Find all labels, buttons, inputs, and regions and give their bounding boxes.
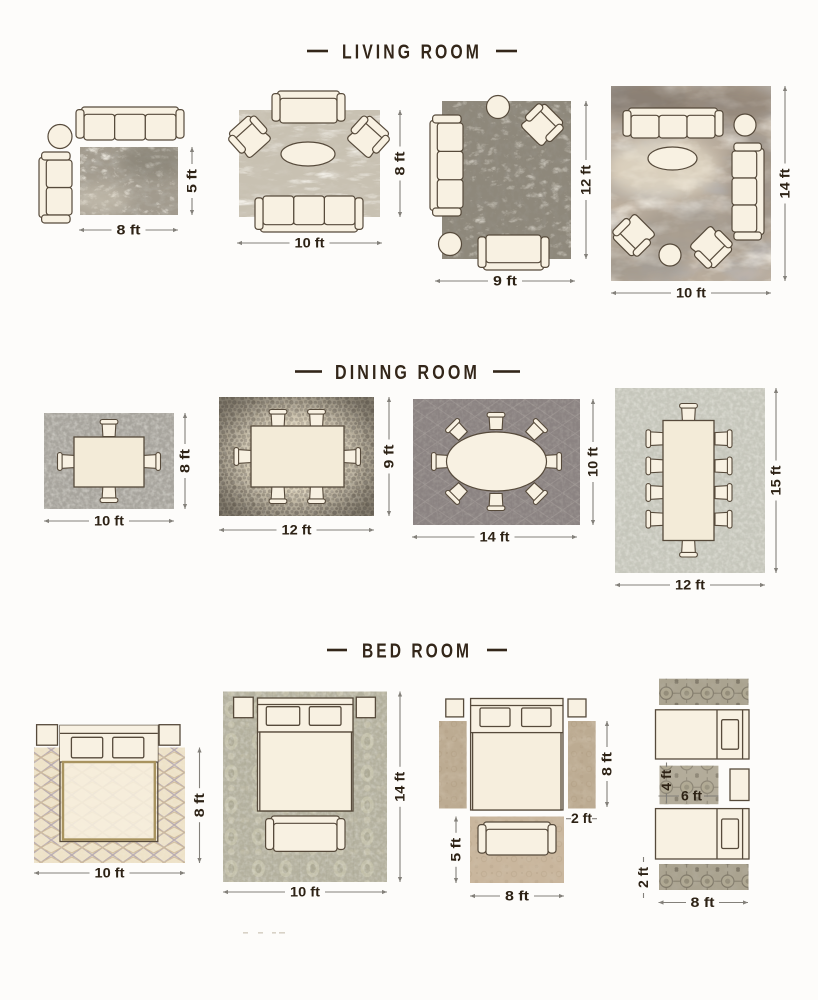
svg-text:10 ft: 10 ft [95,866,126,881]
svg-text:8 ft: 8 ft [117,223,142,238]
svg-text:10 ft: 10 ft [290,885,321,900]
svg-text:14 ft: 14 ft [480,530,511,545]
svg-text:14 ft: 14 ft [778,168,793,199]
svg-text:8 ft: 8 ft [178,448,193,473]
svg-text:10 ft: 10 ft [295,236,326,251]
svg-text:DINING ROOM: DINING ROOM [335,361,480,384]
svg-text:10 ft: 10 ft [586,446,601,477]
svg-text:9 ft: 9 ft [493,274,518,289]
svg-text:8 ft: 8 ft [192,793,207,818]
svg-text:12 ft: 12 ft [579,164,594,195]
svg-text:4 ft: 4 ft [659,769,674,791]
svg-text:8 ft: 8 ft [691,895,716,910]
svg-text:5 ft: 5 ft [449,837,464,862]
svg-text:12 ft: 12 ft [675,578,706,593]
svg-text:15 ft: 15 ft [769,465,784,496]
svg-text:8 ft: 8 ft [505,889,530,904]
svg-text:14 ft: 14 ft [393,771,408,802]
svg-text:6 ft: 6 ft [681,789,703,804]
svg-text:10 ft: 10 ft [676,286,707,301]
svg-text:LIVING ROOM: LIVING ROOM [342,40,482,63]
svg-text:8 ft: 8 ft [600,751,615,776]
svg-text:8 ft: 8 ft [393,151,408,176]
svg-text:12 ft: 12 ft [282,523,313,538]
svg-text:2 ft: 2 ft [636,866,651,888]
svg-text:10 ft: 10 ft [94,514,125,529]
svg-text:5 ft: 5 ft [185,168,200,193]
svg-text:9 ft: 9 ft [382,444,397,469]
svg-text:2 ft: 2 ft [571,811,593,826]
svg-text:BED ROOM: BED ROOM [362,639,472,662]
